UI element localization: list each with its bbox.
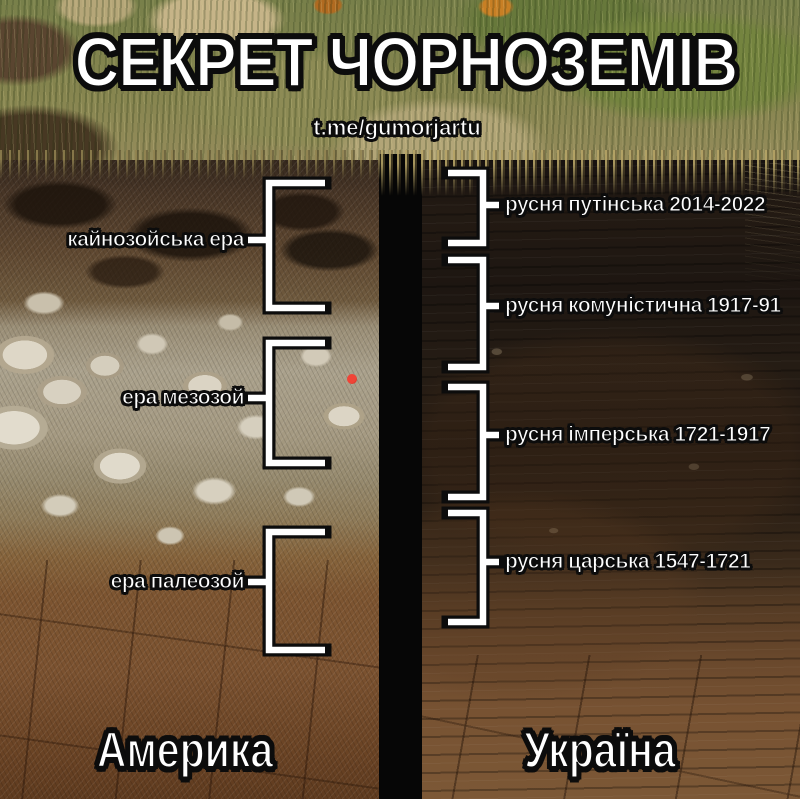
bracket-imperial-era <box>441 380 511 504</box>
country-label-ukraine: Україна <box>524 724 675 776</box>
period-label-putin: русня путінська 2014-2022 <box>505 190 765 220</box>
bracket-cenozoic <box>238 176 338 315</box>
dry-grass-wisps <box>745 163 800 293</box>
period-label-tsarist: русня царська 1547-1721 <box>505 547 750 577</box>
era-label-paleozoic: ера палеозой <box>111 567 244 597</box>
era-label-mesozoic: ера мезозой <box>122 383 244 413</box>
bracket-mesozoic <box>238 336 338 470</box>
meme-canvas: СЕКРЕТ ЧОРНОЗЕМІВ t.me/gumorjartu кайноз… <box>0 0 800 799</box>
country-label-america: Америка <box>97 724 273 776</box>
period-label-communist: русня комуністична 1917-91 <box>505 291 781 321</box>
red-marker-dot <box>347 374 357 384</box>
bracket-paleozoic <box>238 525 338 657</box>
bracket-communist-era <box>441 253 511 374</box>
telegram-watermark: t.me/gumorjartu <box>313 114 480 142</box>
period-label-imperial: русня імперська 1721-1917 <box>505 420 770 450</box>
meme-title: СЕКРЕТ ЧОРНОЗЕМІВ <box>75 26 737 98</box>
column-divider-bar <box>379 154 422 799</box>
bracket-tsarist-era <box>441 506 511 629</box>
bracket-putin-era <box>441 166 511 250</box>
era-label-cenozoic: кайнозойська ера <box>67 225 244 255</box>
